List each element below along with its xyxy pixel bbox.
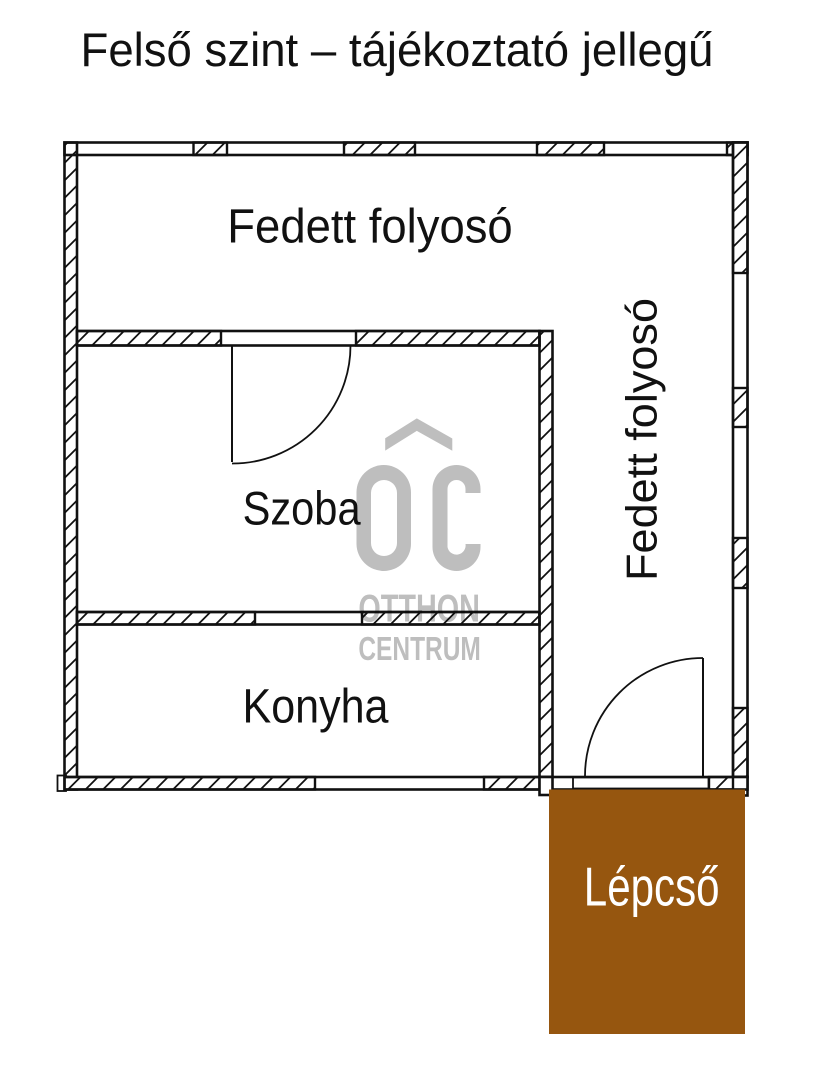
svg-text:Lépcső: Lépcső <box>584 857 720 918</box>
svg-text:CENTRUM: CENTRUM <box>358 630 481 667</box>
svg-text:Szoba: Szoba <box>243 482 362 535</box>
svg-text:Fedett folyosó: Fedett folyosó <box>227 201 512 254</box>
svg-text:Konyha: Konyha <box>243 680 389 733</box>
svg-text:OTTHON: OTTHON <box>358 588 480 631</box>
svg-text:Fedett folyosó: Fedett folyosó <box>618 298 667 581</box>
svg-text:Felső szint – tájékoztató jell: Felső szint – tájékoztató jellegű <box>81 24 714 77</box>
